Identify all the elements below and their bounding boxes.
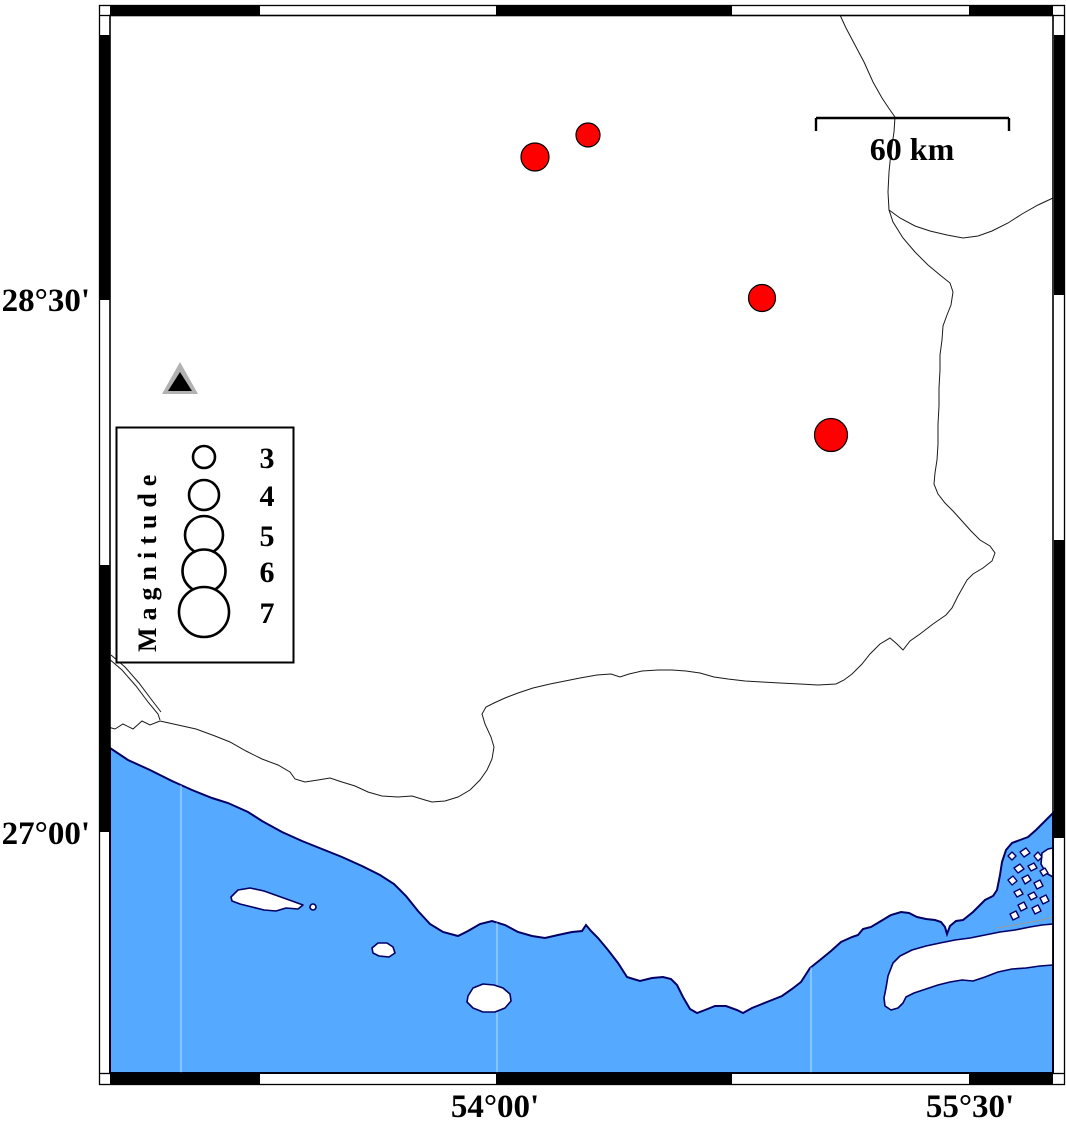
- legend-title: Magnitude: [133, 468, 162, 652]
- legend-magnitude-circle: [179, 587, 229, 637]
- legend-magnitude-label: 7: [260, 597, 275, 630]
- map-svg: 60 km Magnitude 34567 28°30' 27°00' 54°0…: [0, 0, 1066, 1123]
- map-figure: 60 km Magnitude 34567 28°30' 27°00' 54°0…: [0, 0, 1066, 1123]
- border-double-a: [108, 658, 160, 720]
- lat-label-2700: 27°00': [2, 816, 90, 852]
- legend-magnitude-label: 4: [260, 480, 275, 513]
- magnitude-legend: Magnitude 34567: [117, 428, 294, 663]
- station-marker: [162, 362, 198, 394]
- legend-magnitude-label: 6: [260, 556, 275, 589]
- scale-bar-label: 60 km: [870, 131, 955, 167]
- lon-label-5530: 55°30': [926, 1089, 1014, 1123]
- earthquake-marker: [576, 123, 600, 147]
- legend-magnitude-label: 3: [260, 442, 275, 475]
- earthquake-marker: [815, 419, 848, 452]
- island-oval: [467, 984, 511, 1012]
- earthquake-marker: [749, 285, 776, 312]
- border-stub: [108, 721, 160, 729]
- scale-bar: [816, 118, 1009, 131]
- island-small-blob: [372, 943, 395, 957]
- island-dot: [310, 904, 316, 910]
- lat-label-2830: 28°30': [2, 283, 90, 319]
- legend-magnitude-circle: [189, 480, 219, 510]
- sea: [110, 748, 1053, 1073]
- lon-label-5400: 54°00': [451, 1089, 539, 1123]
- earthquake-marker: [521, 143, 549, 171]
- legend-magnitude-circle: [193, 446, 215, 468]
- earthquake-markers: [521, 123, 848, 452]
- border-branch-east: [889, 198, 1053, 238]
- border-double-b: [111, 655, 161, 712]
- legend-magnitude-label: 5: [260, 520, 275, 553]
